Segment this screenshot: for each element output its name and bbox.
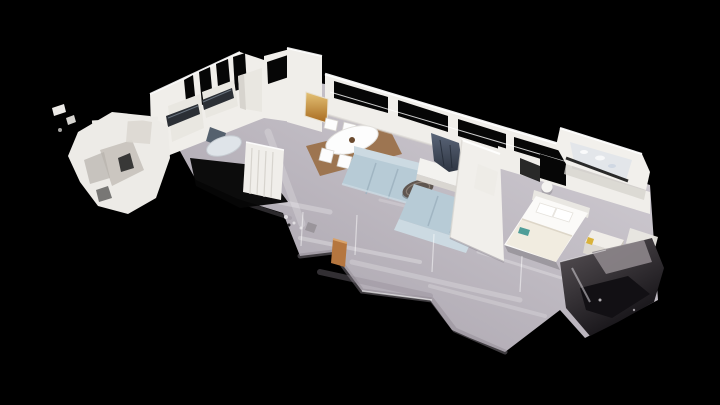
dining-chair: [319, 148, 334, 163]
fragment-speck: [58, 128, 62, 132]
mesh-speck: [599, 299, 602, 302]
mesh-speck: [633, 309, 635, 311]
bath-fixture: [580, 150, 588, 154]
fragment-shade-patch: [126, 118, 152, 144]
bath-fixture: [595, 156, 605, 161]
viewer-stage: [0, 0, 720, 405]
dollhouse-render: [0, 0, 720, 405]
slatted-shelf: [243, 142, 284, 200]
debris-speck: [293, 222, 296, 225]
table-centerpiece: [349, 137, 355, 143]
debris-speck: [284, 215, 288, 219]
debris-speck-dark: [288, 224, 291, 227]
dollhouse-3d-viewport[interactable]: [0, 0, 720, 405]
wall-sconce: [542, 182, 553, 193]
hallway: [287, 48, 328, 132]
bath-fixture: [608, 164, 616, 168]
